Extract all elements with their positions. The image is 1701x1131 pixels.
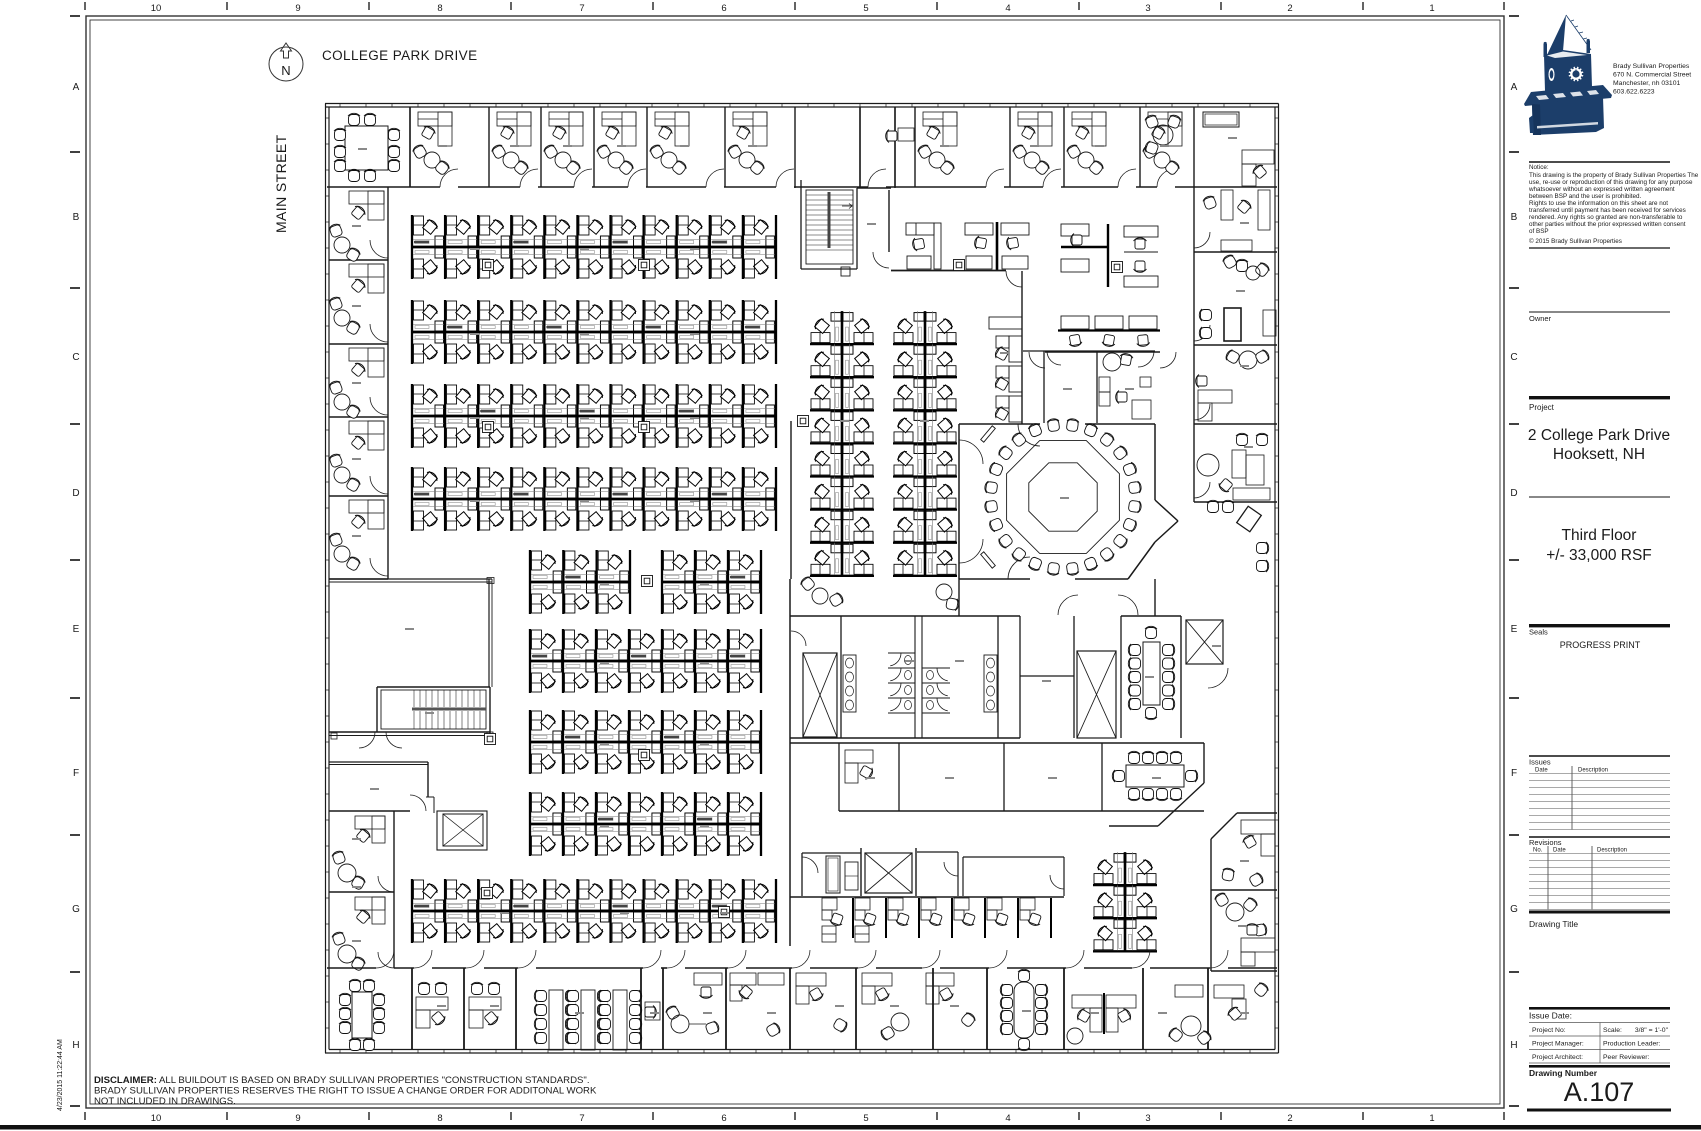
svg-text:Hooksett, NH: Hooksett, NH <box>1553 446 1645 463</box>
svg-text:A.107: A.107 <box>1564 1077 1635 1107</box>
svg-text:transferred until payment has: transferred until payment has been recei… <box>1529 207 1686 214</box>
svg-text:whatsoever without an expresse: whatsoever without an expressed written … <box>1528 186 1675 193</box>
svg-text:rendered. Any rights so grante: rendered. Any rights so granted are non-… <box>1529 214 1683 221</box>
svg-text:use, re-use or reproduction of: use, re-use or reproduction of this draw… <box>1529 179 1693 186</box>
svg-text:2: 2 <box>1287 3 1292 14</box>
svg-text:Date: Date <box>1535 768 1548 774</box>
svg-text:1: 1 <box>1429 1113 1434 1124</box>
svg-text:Production Leader:: Production Leader: <box>1603 1041 1661 1048</box>
svg-text:9: 9 <box>295 3 300 14</box>
svg-text:8: 8 <box>437 3 442 14</box>
svg-text:between BSP and the user is pr: between BSP and the user is prohibited. <box>1529 193 1642 200</box>
svg-text:3: 3 <box>1145 3 1150 14</box>
svg-text:Brady Sullivan Properties: Brady Sullivan Properties <box>1613 63 1690 70</box>
svg-text:670 N. Commercial Street: 670 N. Commercial Street <box>1613 72 1691 79</box>
svg-text:6: 6 <box>721 3 726 14</box>
svg-text:D: D <box>1510 488 1517 499</box>
svg-text:Project No:: Project No: <box>1532 1027 1566 1034</box>
svg-text:Description: Description <box>1578 768 1608 774</box>
svg-text:other parties without the pri: other parties without the prior expresse… <box>1529 221 1686 228</box>
svg-text:3: 3 <box>1145 1113 1150 1124</box>
svg-text:H: H <box>72 1040 79 1051</box>
svg-text:COLLEGE PARK DRIVE: COLLEGE PARK DRIVE <box>322 48 478 63</box>
svg-text:B: B <box>73 212 80 223</box>
svg-text:8: 8 <box>437 1113 442 1124</box>
svg-text:C: C <box>1510 352 1517 363</box>
svg-text:10: 10 <box>151 3 162 14</box>
svg-text:+/- 33,000 RSF: +/- 33,000 RSF <box>1546 547 1652 564</box>
svg-text:C: C <box>72 352 79 363</box>
svg-text:Project Architect:: Project Architect: <box>1532 1054 1583 1061</box>
svg-text:9: 9 <box>295 1113 300 1124</box>
svg-text:Project Manager:: Project Manager: <box>1532 1041 1584 1048</box>
svg-text:Seals: Seals <box>1529 628 1548 637</box>
svg-text:Notice:: Notice: <box>1529 164 1549 171</box>
svg-text:PROGRESS PRINT: PROGRESS PRINT <box>1560 640 1641 650</box>
svg-text:E: E <box>1511 624 1518 635</box>
svg-text:6: 6 <box>721 1113 726 1124</box>
svg-text:4: 4 <box>1005 1113 1010 1124</box>
svg-text:4: 4 <box>1005 3 1010 14</box>
svg-text:2 College Park Drive: 2 College Park Drive <box>1528 427 1670 444</box>
svg-text:This drawing is the property o: This drawing is the property of Brady Su… <box>1529 172 1699 179</box>
svg-text:Manchester, nh 03101: Manchester, nh 03101 <box>1613 80 1680 87</box>
svg-text:© 2015 Brady Sullivan Properti: © 2015 Brady Sullivan Properties <box>1529 237 1622 245</box>
svg-text:MAIN STREET: MAIN STREET <box>273 134 289 233</box>
svg-text:Third Floor: Third Floor <box>1562 527 1637 544</box>
svg-text:3/8" = 1'-0": 3/8" = 1'-0" <box>1635 1027 1669 1034</box>
svg-text:5: 5 <box>863 1113 868 1124</box>
svg-text:Peer Reviewer:: Peer Reviewer: <box>1603 1054 1650 1061</box>
svg-text:A: A <box>1511 82 1518 93</box>
svg-text:Project: Project <box>1529 403 1555 412</box>
svg-text:7: 7 <box>579 3 584 14</box>
svg-text:F: F <box>1511 768 1517 779</box>
svg-text:Rights to use the information: Rights to use the information on this sh… <box>1529 200 1668 207</box>
svg-text:Drawing Title: Drawing Title <box>1529 919 1578 929</box>
svg-text:Date: Date <box>1553 848 1566 854</box>
svg-text:Issue Date:: Issue Date: <box>1529 1011 1572 1021</box>
svg-text:Scale:: Scale: <box>1603 1027 1622 1034</box>
svg-text:Issues: Issues <box>1529 758 1551 767</box>
svg-text:1: 1 <box>1429 3 1434 14</box>
svg-text:G: G <box>1510 904 1518 915</box>
svg-text:DISCLAIMER: ALL BUILDOUT IS BA: DISCLAIMER: ALL BUILDOUT IS BASED ON BRA… <box>94 1075 589 1086</box>
svg-text:G: G <box>72 904 80 915</box>
svg-text:Description: Description <box>1597 848 1627 854</box>
svg-text:2: 2 <box>1287 1113 1292 1124</box>
svg-text:Revisions: Revisions <box>1529 838 1562 847</box>
svg-text:A: A <box>73 82 80 93</box>
svg-text:No.: No. <box>1533 848 1543 854</box>
svg-text:4/23/2015 11:22:44 AM: 4/23/2015 11:22:44 AM <box>57 1039 64 1111</box>
svg-text:BRADY SULLIVAN PROPERTIES RESE: BRADY SULLIVAN PROPERTIES RESERVES THE R… <box>94 1086 597 1097</box>
svg-text:E: E <box>73 624 80 635</box>
svg-text:F: F <box>73 768 79 779</box>
svg-text:7: 7 <box>579 1113 584 1124</box>
svg-text:N: N <box>281 63 290 78</box>
svg-text:D: D <box>72 488 79 499</box>
svg-text:10: 10 <box>151 1113 162 1124</box>
svg-text:NOT INCLUDED IN DRAWINGS.: NOT INCLUDED IN DRAWINGS. <box>94 1096 236 1107</box>
svg-text:H: H <box>1510 1040 1517 1051</box>
svg-text:of BSP: of BSP <box>1529 228 1549 235</box>
svg-text:B: B <box>1511 212 1518 223</box>
svg-text:603.622.6223: 603.622.6223 <box>1613 89 1655 96</box>
svg-text:Owner: Owner <box>1529 314 1552 323</box>
svg-text:5: 5 <box>863 3 868 14</box>
